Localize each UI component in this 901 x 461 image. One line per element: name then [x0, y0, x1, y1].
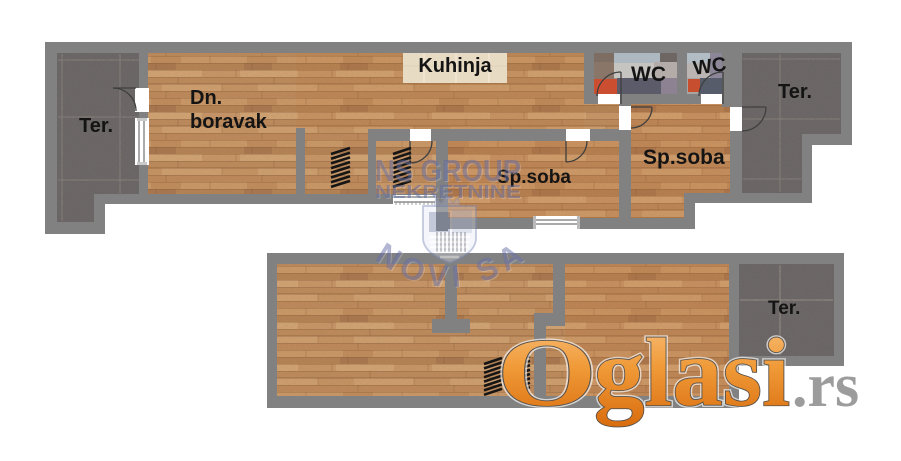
svg-text:WC: WC	[631, 63, 666, 86]
svg-text:glasi: glasi	[594, 319, 790, 426]
svg-text:Ter.: Ter.	[768, 298, 800, 319]
svg-text:Kuhinja: Kuhinja	[418, 55, 492, 77]
svg-text:boravak: boravak	[190, 111, 268, 133]
svg-text:Ter.: Ter.	[79, 115, 113, 137]
svg-text:Dn.: Dn.	[190, 87, 222, 109]
svg-text:Sp.soba: Sp.soba	[643, 146, 725, 169]
svg-text:WC: WC	[692, 53, 728, 79]
svg-text:.rs: .rs	[792, 352, 859, 420]
svg-text:O: O	[497, 319, 597, 427]
svg-text:Ter.: Ter.	[778, 81, 812, 103]
